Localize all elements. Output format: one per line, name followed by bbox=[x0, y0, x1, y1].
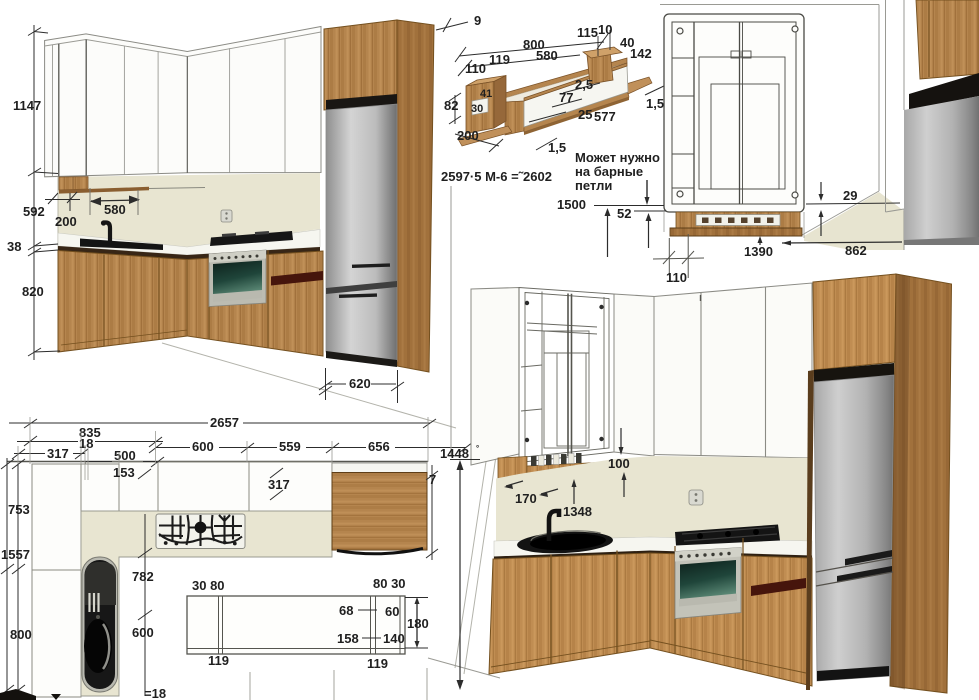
svg-text:1500: 1500 bbox=[557, 197, 586, 212]
svg-text:52: 52 bbox=[617, 206, 631, 221]
svg-text:петли: петли bbox=[575, 178, 612, 193]
svg-text:80 30: 80 30 bbox=[373, 576, 406, 591]
svg-text:1557: 1557 bbox=[1, 547, 30, 562]
svg-text:на барные: на барные bbox=[575, 164, 643, 179]
svg-text:°: ° bbox=[476, 444, 479, 453]
svg-text:820: 820 bbox=[22, 284, 44, 299]
svg-text:317: 317 bbox=[268, 477, 290, 492]
svg-text:500: 500 bbox=[114, 448, 136, 463]
svg-text:620: 620 bbox=[349, 376, 371, 391]
svg-text:142: 142 bbox=[630, 46, 652, 61]
svg-text:100: 100 bbox=[608, 456, 630, 471]
svg-text:2597·5 М-6 =˜2602: 2597·5 М-6 =˜2602 bbox=[441, 169, 552, 184]
svg-text:9: 9 bbox=[474, 13, 481, 28]
svg-text:=18: =18 bbox=[144, 686, 166, 700]
svg-text:1448: 1448 bbox=[440, 446, 469, 461]
svg-text:559: 559 bbox=[279, 439, 301, 454]
svg-text:119: 119 bbox=[208, 653, 229, 668]
svg-text:1348: 1348 bbox=[563, 504, 592, 519]
svg-text:592: 592 bbox=[23, 204, 45, 219]
svg-text:2657: 2657 bbox=[210, 415, 239, 430]
svg-text:30 80: 30 80 bbox=[192, 578, 225, 593]
svg-text:1,5: 1,5 bbox=[646, 96, 664, 111]
svg-text:82: 82 bbox=[444, 98, 458, 113]
svg-text:153: 153 bbox=[113, 465, 135, 480]
svg-text:115: 115 bbox=[577, 25, 598, 40]
svg-text:158: 158 bbox=[337, 631, 359, 646]
svg-text:200: 200 bbox=[457, 128, 479, 143]
svg-text:317: 317 bbox=[47, 446, 69, 461]
svg-text:60: 60 bbox=[385, 604, 399, 619]
svg-text:38: 38 bbox=[7, 239, 21, 254]
svg-text:68: 68 bbox=[339, 603, 353, 618]
svg-text:77: 77 bbox=[559, 90, 573, 105]
svg-text:29: 29 bbox=[843, 188, 857, 203]
svg-text:140: 140 bbox=[383, 631, 405, 646]
svg-text:200: 200 bbox=[55, 214, 77, 229]
svg-text:600: 600 bbox=[132, 625, 154, 640]
svg-text:1147: 1147 bbox=[13, 98, 41, 113]
svg-text:577: 577 bbox=[594, 109, 616, 124]
svg-text:41: 41 bbox=[480, 88, 492, 100]
svg-text:119: 119 bbox=[367, 656, 388, 671]
svg-text:862: 862 bbox=[845, 243, 867, 258]
svg-text:30: 30 bbox=[471, 103, 483, 115]
svg-text:25: 25 bbox=[578, 107, 592, 122]
svg-text:110: 110 bbox=[465, 61, 486, 76]
svg-text:600: 600 bbox=[192, 439, 214, 454]
svg-text:580: 580 bbox=[104, 202, 126, 217]
svg-text:800: 800 bbox=[10, 627, 32, 642]
svg-text:Может нужно: Может нужно bbox=[575, 150, 660, 165]
svg-text:1390: 1390 bbox=[744, 244, 773, 259]
svg-text:180: 180 bbox=[407, 616, 429, 631]
svg-text:580: 580 bbox=[536, 48, 558, 63]
svg-text:10: 10 bbox=[598, 22, 612, 37]
svg-text:110: 110 bbox=[666, 270, 687, 285]
svg-text:7: 7 bbox=[429, 472, 436, 487]
svg-text:656: 656 bbox=[368, 439, 390, 454]
svg-text:753: 753 bbox=[8, 502, 30, 517]
svg-text:170: 170 bbox=[515, 491, 537, 506]
svg-text:119: 119 bbox=[489, 52, 510, 67]
svg-text:1,5: 1,5 bbox=[548, 140, 566, 155]
svg-text:782: 782 bbox=[132, 569, 154, 584]
svg-text:2,5: 2,5 bbox=[575, 77, 593, 92]
